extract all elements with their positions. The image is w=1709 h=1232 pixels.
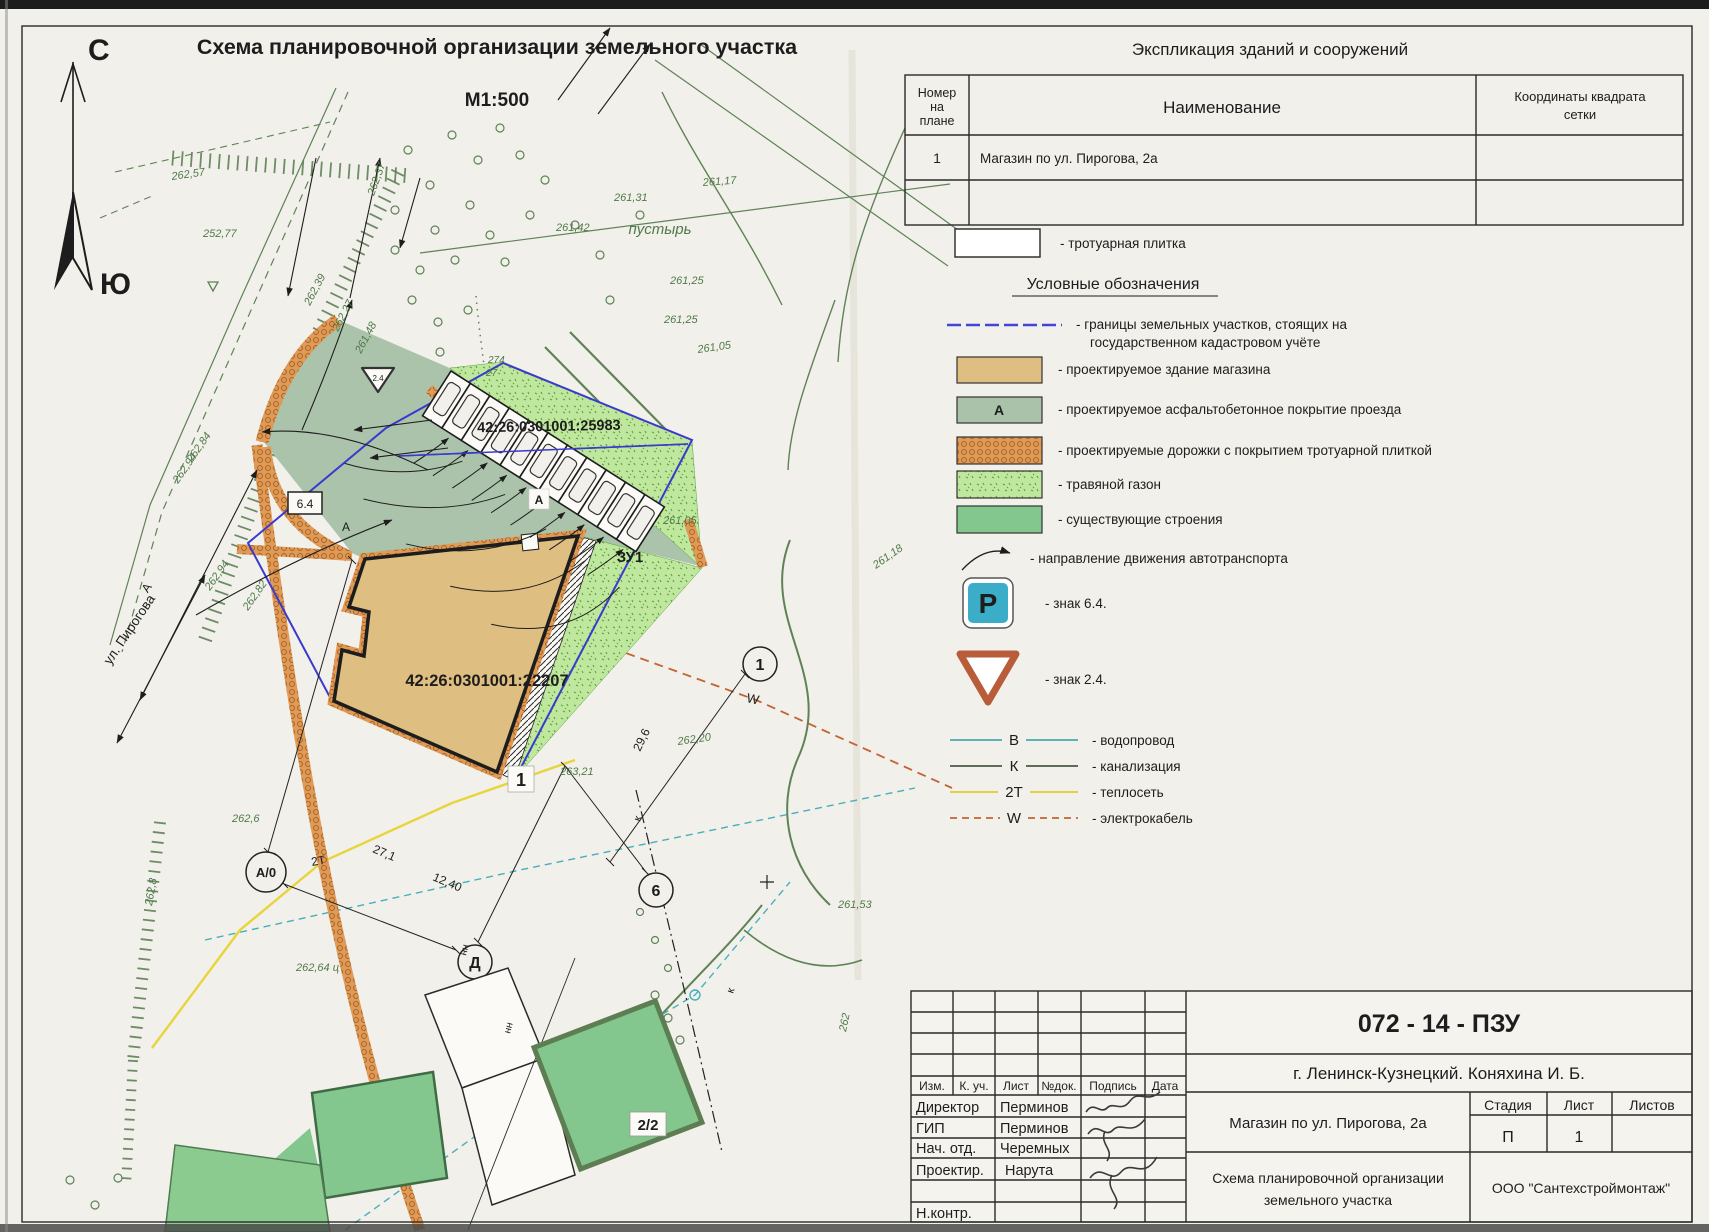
legend-swatch-paving: [955, 229, 1040, 257]
col-podpis: Подпись: [1089, 1079, 1137, 1093]
elev: 261,25: [663, 314, 699, 326]
scan-edge-bottom: [0, 1224, 1709, 1232]
elev: 261,42: [555, 222, 590, 234]
page-title: Схема планировочной организации земельно…: [197, 35, 798, 59]
legend-existing-label: - существующие строения: [1058, 512, 1223, 527]
water-letter: В: [1009, 732, 1019, 749]
elev: 252,77: [202, 228, 238, 240]
cable-letter: W: [1007, 810, 1022, 827]
col-num-2: на: [930, 100, 944, 114]
name-proektir: Нарута: [1005, 1163, 1054, 1179]
role-proektir: Проектир.: [916, 1163, 984, 1179]
sheet-value: 1: [1575, 1129, 1584, 1146]
elev: 274: [487, 355, 505, 366]
name-gip: Перминов: [1000, 1121, 1069, 1137]
col-name: Наименование: [1163, 98, 1281, 117]
title-block: Изм. К. уч. Лист №док. Подпись Дата Дире…: [911, 991, 1692, 1222]
elev: 262,64 ц: [295, 962, 339, 974]
city-line: г. Ленинск-Кузнецкий. Коняхина И. Б.: [1293, 1064, 1585, 1083]
cable-label: - электрокабель: [1092, 811, 1193, 826]
building-entrance: [521, 533, 539, 551]
heat-letter: 2Т: [1005, 784, 1023, 801]
legend-swatch-building: [957, 357, 1042, 383]
doc-number: 072 - 14 - ПЗУ: [1358, 1010, 1521, 1038]
role-nkontr: Н.контр.: [916, 1206, 972, 1222]
role-gip: ГИП: [916, 1121, 945, 1137]
legend-boundary-label-1: - границы земельных участков, стоящих на: [1076, 317, 1347, 332]
legend-title: Условные обозначения: [1027, 276, 1200, 293]
compass-north-label: С: [88, 34, 110, 67]
legend-paths-label: - проектируемые дорожки с покрытием трот…: [1058, 443, 1432, 458]
role-nach-otd: Нач. отд.: [916, 1141, 976, 1157]
marker-1-label: 1: [756, 657, 765, 674]
heat-label: - теплосеть: [1092, 785, 1164, 800]
row-1-name: Магазин по ул. Пирогова, 2а: [980, 151, 1158, 166]
sheet-name-1: Схема планировочной организации: [1212, 1170, 1444, 1186]
parking-sign-icon: Р: [963, 578, 1013, 628]
sewer-letter: К: [1010, 758, 1019, 775]
sheet-name-2: земельного участка: [1264, 1192, 1392, 1208]
role-director: Директор: [916, 1100, 979, 1116]
asphalt-letter-plain: А: [342, 520, 350, 534]
col-data: Дата: [1152, 1079, 1179, 1093]
legend-swatch-lawn: [957, 471, 1042, 498]
water-label: - водопровод: [1092, 733, 1174, 748]
cadastral-building-label: 42:26:0301001:22207: [405, 672, 568, 690]
col-kuch: К. уч.: [959, 1079, 988, 1093]
scanned-site-plan-sheet: А/0 Д 6 1 27,1 12,40 29,6 2/2 42:26:0301…: [0, 0, 1709, 1232]
elev: 261,25: [669, 275, 705, 287]
legend-boundary-label-2: государственном кадастровом учёте: [1090, 335, 1320, 350]
name-nach-otd: Черемных: [1000, 1141, 1070, 1157]
cadastral-parking-label: 42:26:0301001:25983: [477, 418, 621, 437]
page-scale: М1:500: [465, 90, 529, 111]
legend-asphalt-letter: А: [994, 402, 1004, 418]
legend-swatch-existing: [957, 506, 1042, 533]
elev: 261,17: [701, 175, 737, 189]
plot-zu1-label: ЗУ1: [617, 549, 644, 566]
legend-asphalt-label: - проектируемое асфальтобетонное покрыти…: [1058, 402, 1402, 417]
elev: 27: [485, 368, 498, 379]
scan-edge-top: [0, 0, 1709, 9]
sign-6-4-on-plan: 6.4: [297, 497, 314, 511]
existing-no-label: 2/2: [638, 1117, 659, 1134]
name-director: Перминов: [1000, 1100, 1069, 1116]
legend-paving-label: - тротуарная плитка: [1060, 236, 1186, 251]
col-num-1: Номер: [918, 86, 957, 100]
wasteland-label: пустырь: [628, 221, 691, 238]
scan-edge-left: [5, 0, 8, 1232]
stage-header: Стадия: [1484, 1097, 1532, 1113]
site-plan-drawing: А/0 Д 6 1 27,1 12,40 29,6 2/2 42:26:0301…: [0, 0, 1709, 1232]
compass-south-label: Ю: [100, 268, 131, 301]
asphalt-letter-boxed: А: [535, 493, 544, 507]
stage-value: П: [1502, 1129, 1514, 1146]
legend-swatch-paths: [957, 437, 1042, 464]
marker-d-label: Д: [469, 955, 481, 972]
col-ndok: №док.: [1041, 1079, 1076, 1093]
col-coords-1: Координаты квадрата: [1514, 89, 1646, 104]
row-1-num: 1: [933, 150, 941, 166]
explication-title: Экспликация зданий и сооружений: [1132, 40, 1408, 59]
legend-sign64-label: - знак 6.4.: [1045, 596, 1107, 611]
marker-6-label: 6: [652, 883, 661, 900]
sheets-header: Листов: [1629, 1097, 1675, 1113]
object-name: Магазин по ул. Пирогова, 2а: [1229, 1115, 1427, 1132]
legend-building-label: - проектируемое здание магазина: [1058, 362, 1271, 377]
elev: 261,53: [837, 899, 873, 911]
building-number: 1: [516, 770, 526, 790]
parking-sign-letter: Р: [979, 588, 998, 619]
legend-direction-label: - направление движения автотранспорта: [1030, 551, 1288, 566]
col-list: Лист: [1003, 1079, 1030, 1093]
col-coords-2: сетки: [1564, 107, 1596, 122]
existing-building-west: [312, 1072, 447, 1198]
elev: 261,31: [613, 192, 648, 204]
company-name: ООО "Сантехстроймонтаж": [1492, 1180, 1670, 1196]
sheet-header: Лист: [1564, 1097, 1595, 1113]
sewer-label: - канализация: [1092, 759, 1181, 774]
elev: 261,05: [662, 515, 698, 527]
legend-lawn-label: - травяной газон: [1058, 477, 1161, 492]
sign-2-4-text: 2.4: [372, 374, 384, 383]
legend-sign24-label: - знак 2.4.: [1045, 672, 1107, 687]
marker-a0-label: А/0: [256, 865, 276, 880]
col-izm: Изм.: [919, 1079, 945, 1093]
col-num-3: плане: [920, 114, 955, 128]
elev: 262,6: [231, 813, 260, 825]
elev: 263,21: [559, 766, 594, 778]
